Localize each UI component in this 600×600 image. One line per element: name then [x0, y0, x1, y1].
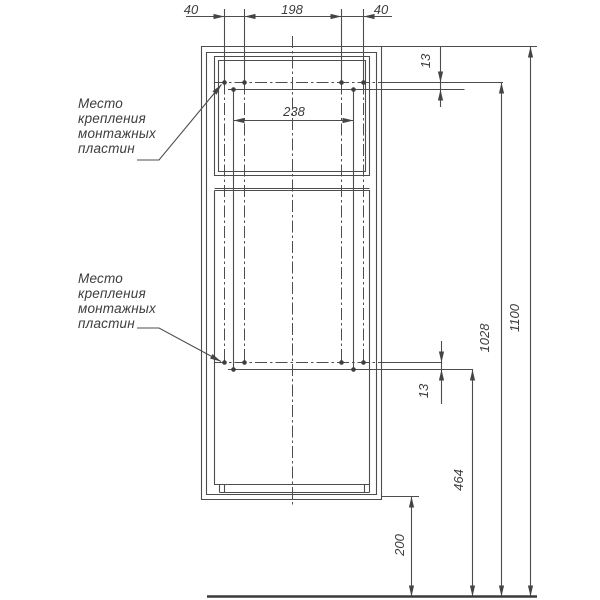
- dim-label-13-lower: 13: [416, 383, 431, 398]
- dim-label-40-left: 40: [184, 2, 199, 17]
- dim-label-238: 238: [282, 104, 305, 119]
- note-upper-line-3: монтажных: [78, 126, 157, 141]
- mounting-point: [361, 360, 366, 365]
- mounting-point: [242, 80, 247, 85]
- note-lower-mounting-plates: Место крепления монтажных пластин: [78, 271, 157, 331]
- note-lower-line-1: Место: [78, 271, 123, 286]
- dim-label-200: 200: [392, 533, 407, 556]
- mounting-point: [361, 80, 366, 85]
- note-upper-line-1: Место: [78, 96, 123, 111]
- dim-label-13-upper: 13: [418, 53, 433, 68]
- dim-label-198: 198: [281, 2, 303, 17]
- drawing-canvas: 40 198 40 238 13 1028 1100 464 200 13 Ме…: [0, 0, 600, 600]
- mounting-point: [242, 360, 247, 365]
- note-upper-line-4: пластин: [78, 141, 135, 156]
- note-lower-line-2: крепления: [78, 286, 146, 301]
- mounting-point: [351, 367, 356, 372]
- mounting-point: [222, 360, 227, 365]
- mounting-point: [222, 80, 227, 85]
- dim-label-1028: 1028: [477, 323, 492, 353]
- mounting-points: [222, 80, 366, 372]
- dimension-and-extension-lines: [137, 9, 537, 597]
- dim-label-40-right: 40: [374, 2, 389, 17]
- dim-label-464: 464: [451, 469, 466, 491]
- dimension-labels: 40 198 40 238 13 1028 1100 464 200 13: [184, 2, 522, 557]
- mounting-point: [351, 87, 356, 92]
- note-upper-line-2: крепления: [78, 111, 146, 126]
- dim-label-1100: 1100: [507, 303, 522, 332]
- mounting-point: [231, 367, 236, 372]
- technical-drawing: 40 198 40 238 13 1028 1100 464 200 13 Ме…: [0, 0, 600, 600]
- note-upper-mounting-plates: Место крепления монтажных пластин: [78, 96, 157, 156]
- note-lower-line-4: пластин: [78, 316, 135, 331]
- arrowheads: [210, 14, 533, 597]
- mounting-point: [231, 87, 236, 92]
- note-lower-line-3: монтажных: [78, 301, 157, 316]
- mounting-point: [339, 80, 344, 85]
- mounting-point: [339, 360, 344, 365]
